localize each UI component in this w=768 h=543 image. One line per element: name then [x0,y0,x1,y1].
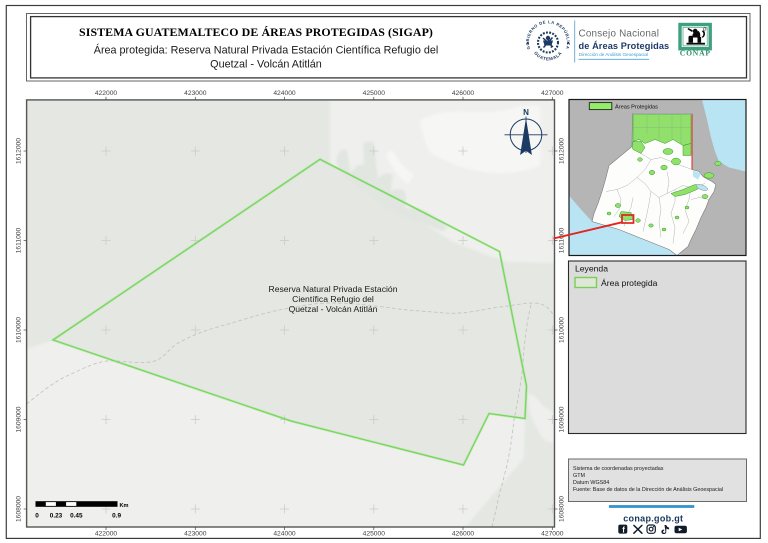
svg-text:Áreas Protegidas: Áreas Protegidas [615,104,658,111]
svg-text:0.9: 0.9 [112,513,121,520]
svg-text:de Áreas Protegidas: de Áreas Protegidas [579,40,670,51]
svg-text:427000: 427000 [541,90,564,97]
svg-text:0: 0 [35,513,39,520]
svg-text:Sistema de coordenadas proyect: Sistema de coordenadas proyectadas [573,466,664,472]
svg-text:426000: 426000 [452,530,475,537]
svg-text:f: f [622,526,625,535]
svg-text:Quetzal - Volcán Atitlán: Quetzal - Volcán Atitlán [289,304,378,314]
svg-text:1608000: 1608000 [559,496,566,522]
svg-text:Reserva Natural Privada Estaci: Reserva Natural Privada Estación [269,284,398,294]
svg-text:Consejo Nacional: Consejo Nacional [579,28,660,39]
svg-text:426000: 426000 [452,90,475,97]
svg-text:423000: 423000 [184,530,207,537]
svg-text:1612000: 1612000 [16,138,23,164]
svg-text:GTM: GTM [573,473,585,479]
svg-text:1608000: 1608000 [16,496,23,522]
svg-text:conap.gob.gt: conap.gob.gt [623,514,683,524]
svg-text:Fuente: Base de datos de la Di: Fuente: Base de datos de la Dirección de… [573,487,723,493]
svg-text:422000: 422000 [95,90,118,97]
svg-text:1610000: 1610000 [16,317,23,343]
svg-text:Quetzal - Volcán Atitlán: Quetzal - Volcán Atitlán [210,58,322,70]
svg-text:1612000: 1612000 [559,138,566,164]
svg-text:423000: 423000 [184,90,207,97]
svg-text:424000: 424000 [273,90,296,97]
svg-text:427000: 427000 [541,530,564,537]
svg-text:Científica Refugio del: Científica Refugio del [292,294,374,304]
svg-text:424000: 424000 [273,530,296,537]
svg-text:Área protegida: Reserva Natura: Área protegida: Reserva Natural Privada … [94,44,438,57]
svg-text:Km: Km [120,503,129,509]
svg-text:CONAP: CONAP [680,49,711,58]
svg-text:1609000: 1609000 [16,406,23,432]
svg-text:1610000: 1610000 [559,317,566,343]
svg-text:Datum WGS84: Datum WGS84 [573,480,609,486]
svg-text:N: N [523,108,529,117]
svg-text:0.23: 0.23 [50,513,63,520]
svg-text:425000: 425000 [363,90,386,97]
svg-text:425000: 425000 [363,530,386,537]
svg-text:SISTEMA GUATEMALTECO DE ÁREAS: SISTEMA GUATEMALTECO DE ÁREAS PROTEGIDAS… [79,25,433,39]
svg-text:422000: 422000 [95,530,118,537]
svg-text:1609000: 1609000 [559,406,566,432]
svg-text:0.45: 0.45 [70,513,83,520]
svg-text:Leyenda: Leyenda [575,264,608,274]
svg-text:1611000: 1611000 [559,227,566,253]
svg-text:Dirección de Análisis Geoespac: Dirección de Análisis Geoespacial [579,52,648,57]
svg-text:1611000: 1611000 [16,227,23,253]
svg-text:Área protegida: Área protegida [601,278,658,288]
